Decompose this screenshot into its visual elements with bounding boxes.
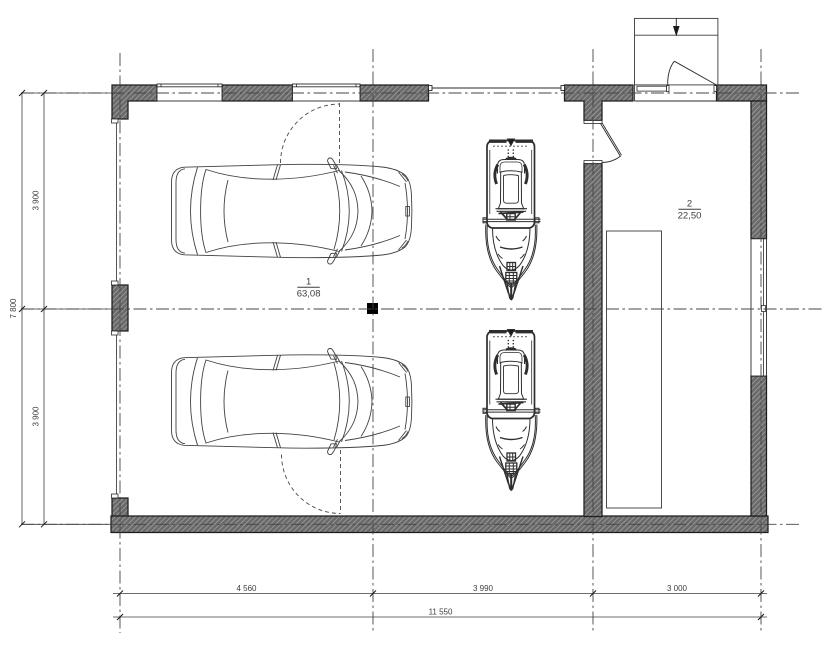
svg-text:22,50: 22,50 xyxy=(678,211,702,222)
svg-text:63,08: 63,08 xyxy=(297,289,321,300)
svg-text:1: 1 xyxy=(306,277,311,288)
svg-text:11 550: 11 550 xyxy=(429,608,453,617)
svg-text:3 900: 3 900 xyxy=(32,190,41,211)
svg-text:3 000: 3 000 xyxy=(667,584,688,593)
svg-text:3 990: 3 990 xyxy=(473,584,494,593)
svg-text:2: 2 xyxy=(687,199,692,210)
svg-text:3 900: 3 900 xyxy=(32,406,41,427)
svg-text:7 800: 7 800 xyxy=(9,298,18,319)
svg-text:4 560: 4 560 xyxy=(236,584,257,593)
